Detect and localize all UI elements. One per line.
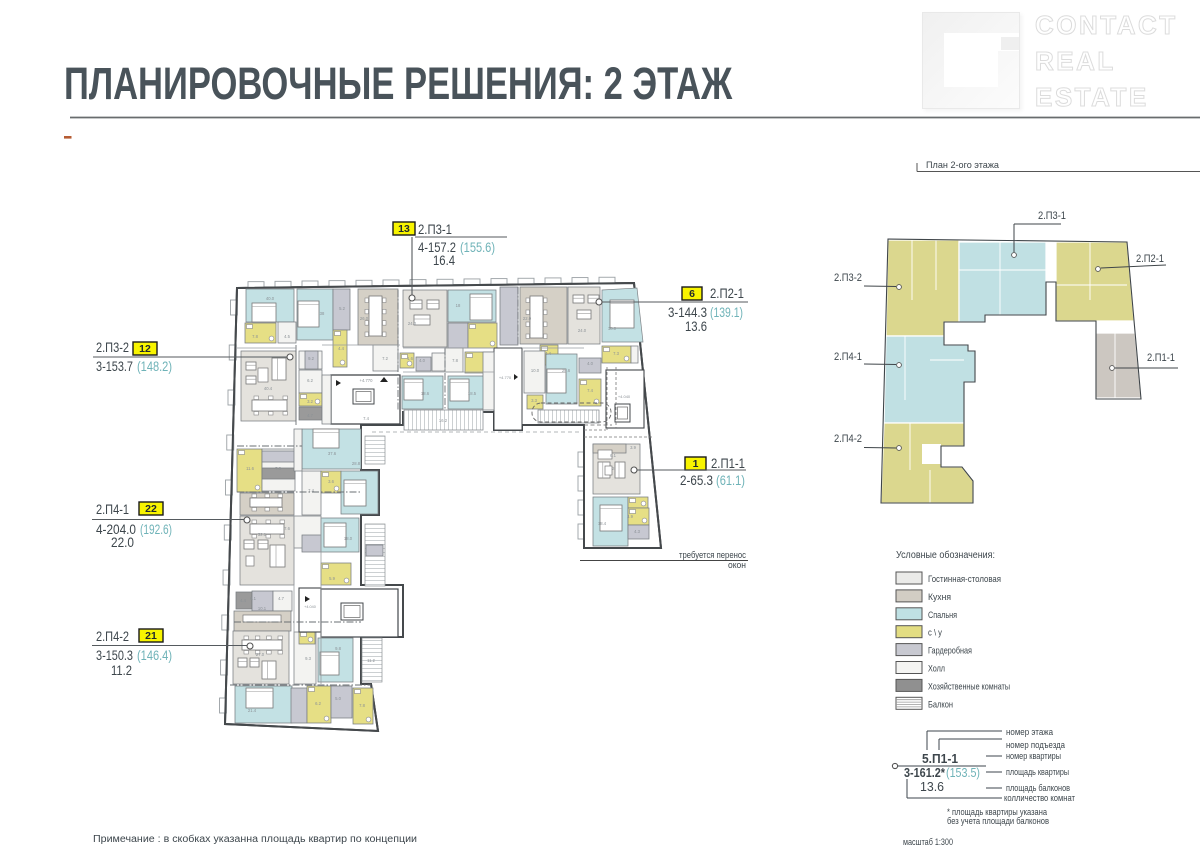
svg-text:+4.040: +4.040 xyxy=(304,605,316,609)
svg-text:колличество комнат: колличество комнат xyxy=(1004,793,1075,803)
svg-text:3.3: 3.3 xyxy=(531,398,537,403)
svg-text:2.П3-2: 2.П3-2 xyxy=(96,339,129,355)
svg-text:масштаб 1:300: масштаб 1:300 xyxy=(903,837,953,848)
svg-text:4.0: 4.0 xyxy=(419,358,425,363)
svg-text:1: 1 xyxy=(693,458,699,470)
svg-text:окон: окон xyxy=(728,560,746,571)
svg-text:16.4: 16.4 xyxy=(433,253,455,268)
svg-text:11.2: 11.2 xyxy=(367,658,376,663)
svg-text:18.0: 18.0 xyxy=(608,326,617,331)
svg-text:2.П1-1: 2.П1-1 xyxy=(1147,352,1175,364)
svg-text:Кухня: Кухня xyxy=(928,592,951,602)
svg-text:7.8: 7.8 xyxy=(359,703,365,708)
svg-text:2.П4-2: 2.П4-2 xyxy=(834,433,862,445)
svg-text:40.0: 40.0 xyxy=(266,296,275,301)
svg-text:18.0: 18.0 xyxy=(344,536,353,541)
svg-text:Гостинная-столовая: Гостинная-столовая xyxy=(928,574,1001,584)
svg-text:18: 18 xyxy=(456,303,461,308)
svg-text:Гардеробная: Гардеробная xyxy=(928,646,972,656)
svg-text:+4.040: +4.040 xyxy=(618,394,631,399)
svg-text:+4.770: +4.770 xyxy=(499,375,512,380)
svg-text:3.6: 3.6 xyxy=(328,479,334,484)
svg-text:4.0: 4.0 xyxy=(587,361,593,366)
svg-text:9.2: 9.2 xyxy=(308,356,314,361)
svg-text:32.1: 32.1 xyxy=(258,532,267,537)
svg-text:4.7: 4.7 xyxy=(307,413,313,418)
svg-text:4.3: 4.3 xyxy=(634,529,640,534)
svg-text:11.2: 11.2 xyxy=(111,663,132,678)
svg-text:6.2: 6.2 xyxy=(307,378,313,383)
svg-text:площадь балконов: площадь балконов xyxy=(1006,783,1070,793)
svg-text:5.0: 5.0 xyxy=(335,696,341,701)
svg-text:28.8: 28.8 xyxy=(352,461,361,466)
svg-text:5.9: 5.9 xyxy=(329,576,335,581)
svg-text:2.П2-1: 2.П2-1 xyxy=(710,285,744,301)
svg-text:номер квартиры: номер квартиры xyxy=(1006,751,1061,761)
svg-text:(148.2): (148.2) xyxy=(137,359,172,374)
svg-text:18.5: 18.5 xyxy=(468,391,477,396)
svg-text:2.П4-2: 2.П4-2 xyxy=(96,628,129,644)
svg-text:4.4: 4.4 xyxy=(240,598,246,603)
svg-text:12: 12 xyxy=(139,343,151,355)
svg-text:3.2: 3.2 xyxy=(307,399,313,404)
svg-text:22.0: 22.0 xyxy=(523,316,532,321)
svg-text:13.6: 13.6 xyxy=(685,319,707,334)
svg-text:10.1: 10.1 xyxy=(258,606,267,611)
svg-text:13.6: 13.6 xyxy=(920,780,944,794)
svg-text:9.8: 9.8 xyxy=(335,646,341,651)
svg-text:13: 13 xyxy=(398,223,410,235)
svg-text:7.8: 7.8 xyxy=(452,358,458,363)
svg-text:(61.1): (61.1) xyxy=(716,473,745,488)
svg-text:2.П4-1: 2.П4-1 xyxy=(96,501,129,517)
svg-text:4.4: 4.4 xyxy=(545,351,551,356)
svg-text:6.1: 6.1 xyxy=(250,596,256,601)
svg-text:номер этажа: номер этажа xyxy=(1006,727,1053,737)
svg-text:24.0: 24.0 xyxy=(408,321,417,326)
svg-text:18.6: 18.6 xyxy=(421,391,430,396)
svg-text:4.7: 4.7 xyxy=(278,596,284,601)
svg-text:16.2: 16.2 xyxy=(439,418,448,423)
svg-text:24.0: 24.0 xyxy=(578,328,587,333)
svg-text:(192.6): (192.6) xyxy=(140,522,172,537)
svg-text:2-65.3: 2-65.3 xyxy=(680,473,713,488)
svg-text:2.П1-1: 2.П1-1 xyxy=(711,455,745,471)
svg-text:План 2-ого этажа: План 2-ого этажа xyxy=(926,160,1000,171)
svg-text:Спальня: Спальня xyxy=(928,610,957,620)
svg-text:7.6: 7.6 xyxy=(284,526,290,531)
svg-text:(155.6): (155.6) xyxy=(460,240,495,255)
svg-text:3-144.3: 3-144.3 xyxy=(668,305,707,320)
svg-text:(146.4): (146.4) xyxy=(137,648,172,663)
svg-text:11.6: 11.6 xyxy=(246,466,255,471)
svg-text:7.8: 7.8 xyxy=(275,466,281,471)
svg-text:+4.770: +4.770 xyxy=(360,378,374,383)
svg-text:без учета площади балконов: без учета площади балконов xyxy=(947,816,1049,826)
svg-text:2.П2-1: 2.П2-1 xyxy=(1136,253,1164,265)
svg-text:Хозяйственные комнаты: Хозяйственные комнаты xyxy=(928,681,1010,691)
svg-text:3-150.3: 3-150.3 xyxy=(96,648,133,663)
svg-text:2.П3-1: 2.П3-1 xyxy=(1038,210,1066,222)
svg-text:26.0: 26.0 xyxy=(360,316,369,321)
svg-text:21.4: 21.4 xyxy=(248,708,257,713)
svg-text:3.9: 3.9 xyxy=(630,445,636,450)
svg-text:22.0: 22.0 xyxy=(111,535,134,550)
svg-text:площадь квартиры: площадь квартиры xyxy=(1006,767,1069,777)
svg-text:27.0: 27.0 xyxy=(256,652,265,657)
svg-text:номер подъезда: номер подъезда xyxy=(1006,740,1065,750)
svg-text:2.П3-1: 2.П3-1 xyxy=(418,221,452,237)
svg-text:Примечание : в скобках указанн: Примечание : в скобках указанна площадь … xyxy=(93,833,417,845)
svg-text:7.8: 7.8 xyxy=(252,334,258,339)
svg-text:7.3: 7.3 xyxy=(613,351,619,356)
svg-text:7.2: 7.2 xyxy=(382,356,388,361)
svg-text:5.2: 5.2 xyxy=(339,306,345,311)
svg-text:5.П1-1: 5.П1-1 xyxy=(922,752,958,766)
svg-text:Условные обозначения:: Условные обозначения: xyxy=(896,550,995,561)
svg-text:1.6: 1.6 xyxy=(407,356,413,361)
svg-text:(153.5): (153.5) xyxy=(946,766,980,780)
svg-text:21: 21 xyxy=(145,630,157,642)
svg-text:7.4: 7.4 xyxy=(587,388,593,393)
svg-text:22: 22 xyxy=(145,503,157,515)
svg-text:2.П4-1: 2.П4-1 xyxy=(834,351,862,363)
svg-text:4.4: 4.4 xyxy=(338,346,344,351)
svg-text:(139.1): (139.1) xyxy=(710,305,743,320)
svg-text:3-161.2*: 3-161.2* xyxy=(904,766,945,780)
svg-text:6.1: 6.1 xyxy=(610,453,616,458)
svg-text:Балкон: Балкон xyxy=(928,699,953,709)
svg-text:4.9: 4.9 xyxy=(627,514,633,519)
svg-text:с \ у: с \ у xyxy=(928,628,942,638)
svg-text:7.4: 7.4 xyxy=(363,416,369,421)
svg-text:9.3: 9.3 xyxy=(305,656,311,661)
svg-text:6.2: 6.2 xyxy=(315,701,321,706)
svg-text:38: 38 xyxy=(320,311,325,316)
svg-text:2.П3-2: 2.П3-2 xyxy=(834,272,862,284)
svg-text:3-153.7: 3-153.7 xyxy=(96,359,133,374)
svg-text:40.4: 40.4 xyxy=(264,386,273,391)
svg-text:4.5: 4.5 xyxy=(284,334,290,339)
svg-text:6: 6 xyxy=(689,288,695,300)
svg-text:28.6: 28.6 xyxy=(562,368,571,373)
svg-text:10.0: 10.0 xyxy=(531,368,540,373)
svg-text:Холл: Холл xyxy=(928,664,945,674)
svg-text:37.6: 37.6 xyxy=(328,451,337,456)
svg-text:18.4: 18.4 xyxy=(598,521,607,526)
